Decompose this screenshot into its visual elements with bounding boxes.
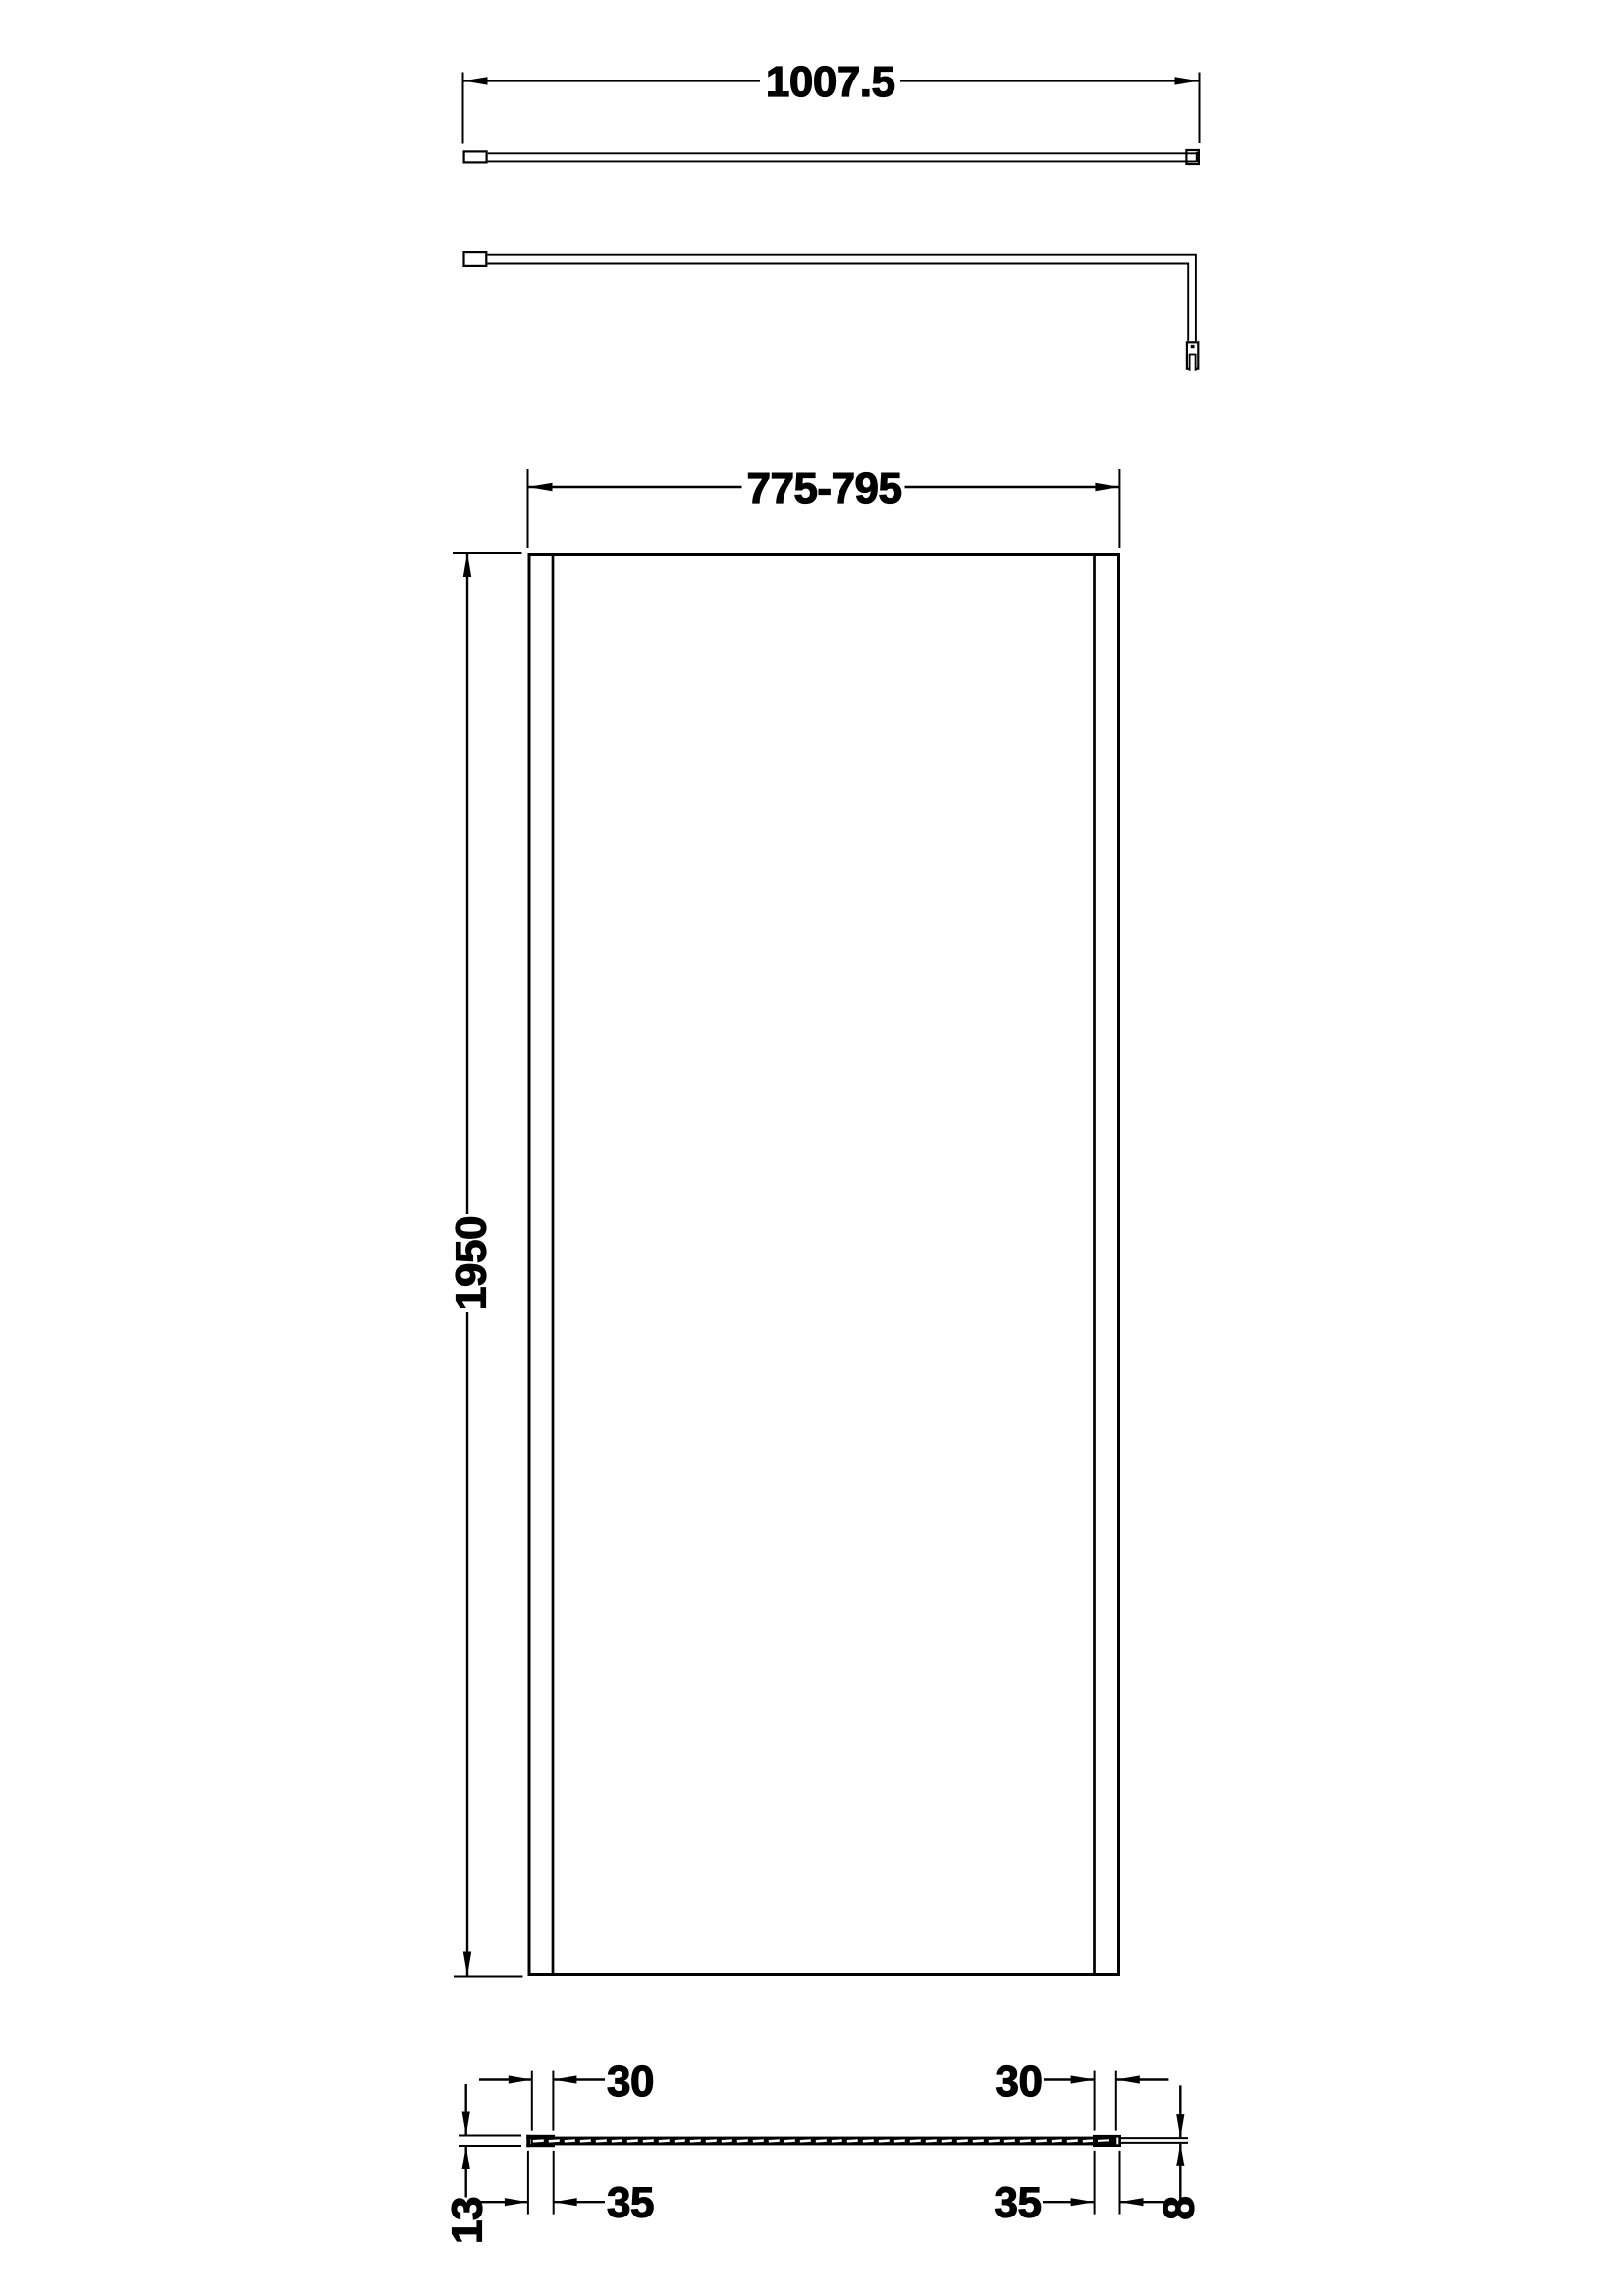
svg-text:8: 8 [1156, 2197, 1204, 2220]
svg-text:775-795: 775-795 [747, 464, 902, 512]
svg-text:35: 35 [607, 2179, 654, 2227]
svg-text:35: 35 [995, 2179, 1042, 2227]
svg-text:30: 30 [607, 2057, 654, 2106]
svg-text:30: 30 [996, 2057, 1043, 2106]
svg-text:13: 13 [444, 2197, 492, 2244]
svg-text:1950: 1950 [448, 1216, 496, 1310]
svg-text:1007.5: 1007.5 [766, 58, 895, 106]
